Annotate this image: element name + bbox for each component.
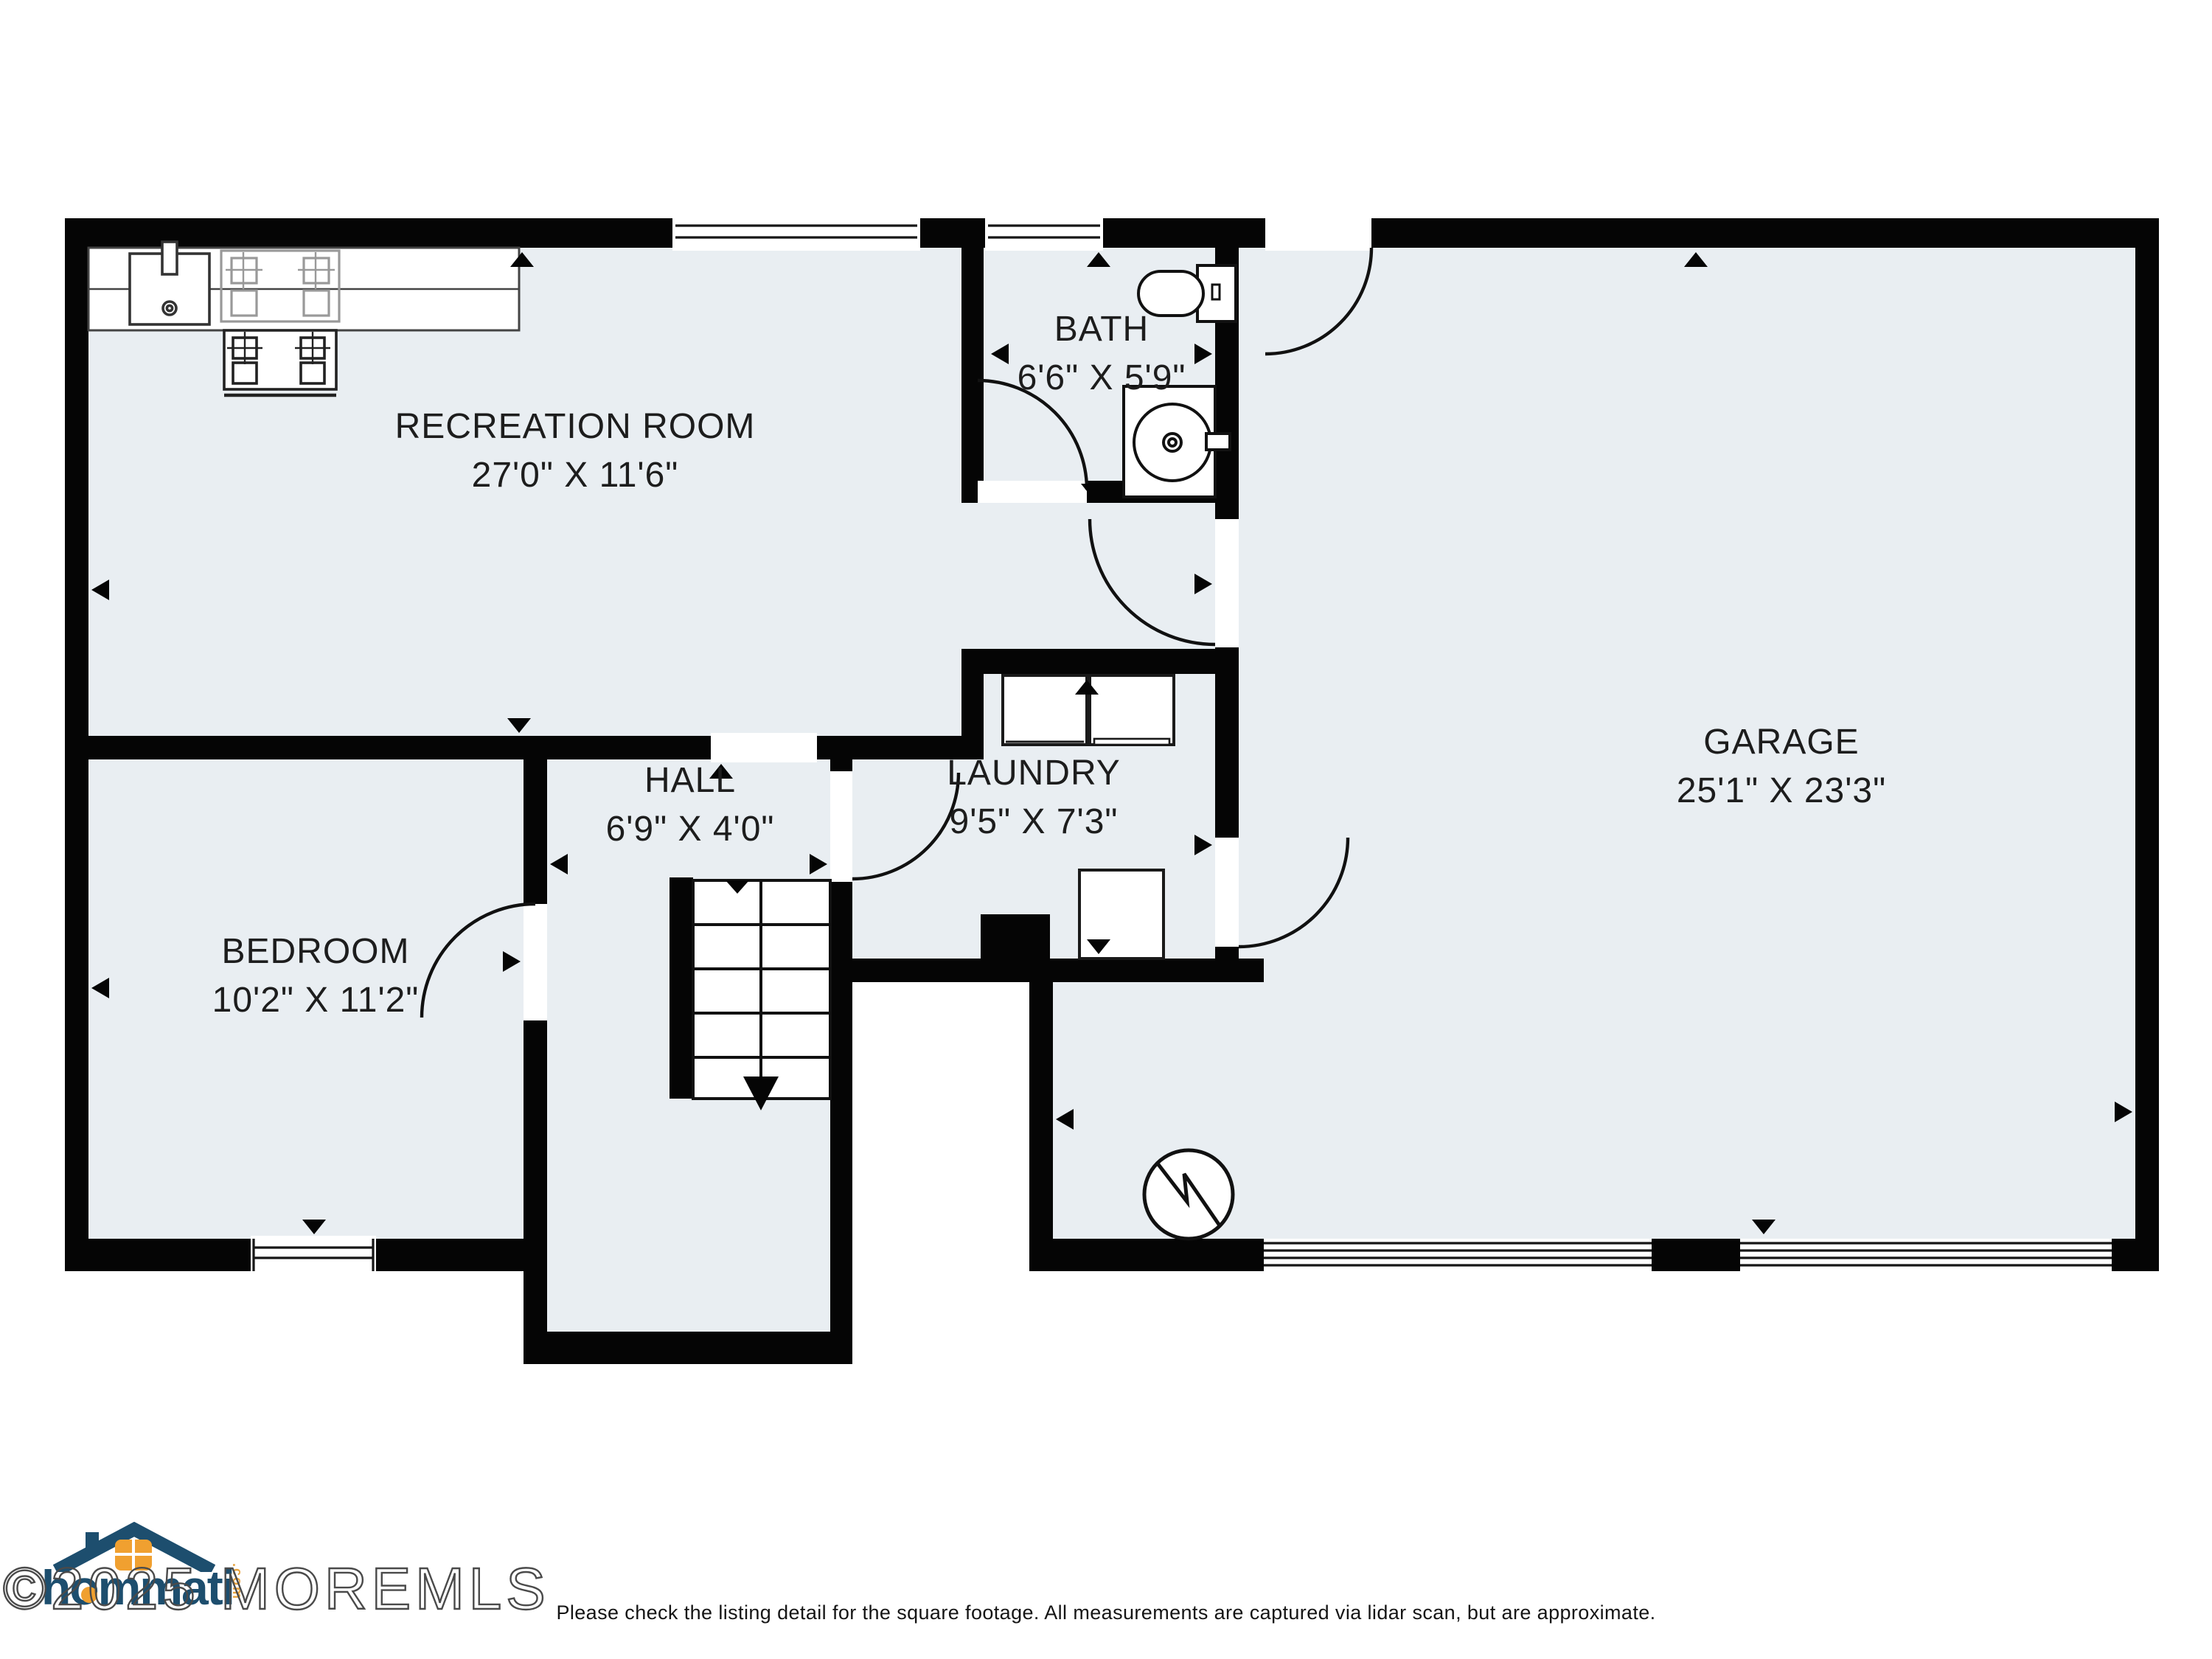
wall-bath-left — [961, 218, 984, 503]
dryer-icon — [1090, 675, 1174, 745]
disclaimer-text: Please check the listing detail for the … — [0, 1601, 2212, 1624]
kitchen-sink-icon — [130, 242, 209, 324]
wall-bedroom-hall — [524, 736, 547, 1364]
room-name: GARAGE — [1677, 718, 1886, 767]
wall-garage-west — [1029, 959, 1053, 1271]
bathroom-sink-icon — [1124, 386, 1230, 497]
room-label-garage: GARAGE 25'1" X 23'3" — [1677, 718, 1886, 815]
room-label-laundry: LAUNDRY 9'5" X 7'3" — [947, 749, 1121, 846]
corner-pillar — [981, 914, 1050, 959]
wall-laundry-bottom — [830, 959, 1264, 982]
room-name: HALL — [606, 757, 775, 805]
entry-door-slab — [1265, 215, 1371, 251]
room-name: RECREATION ROOM — [395, 403, 756, 451]
washer-icon — [1003, 675, 1087, 745]
wall-top — [65, 218, 2159, 248]
electrical-panel-icon — [1144, 1150, 1233, 1239]
stairs — [693, 880, 830, 1110]
wall-stair-bottom — [524, 1332, 852, 1364]
wall-laundry-top — [961, 649, 1239, 674]
room-label-bedroom: BEDROOM 10'2" X 11'2" — [212, 928, 420, 1025]
wall-right — [2135, 218, 2159, 1271]
room-dims: 6'9" X 4'0" — [606, 805, 775, 854]
rec-window — [672, 215, 920, 251]
bedroom-window — [251, 1236, 376, 1274]
bedroom-door-slab — [524, 904, 547, 1020]
room-name: BATH — [1018, 305, 1186, 354]
bath-window — [985, 215, 1103, 251]
room-label-recreation-room: RECREATION ROOM 27'0" X 11'6" — [395, 403, 756, 500]
room-label-hall: HALL 6'9" X 4'0" — [606, 757, 775, 854]
room-name: LAUNDRY — [947, 749, 1121, 798]
room-dims: 6'6" X 5'9" — [1018, 354, 1186, 403]
room-dims: 9'5" X 7'3" — [947, 798, 1121, 846]
room-label-bath: BATH 6'6" X 5'9" — [1018, 305, 1186, 403]
wall-rec-hall-right — [817, 736, 961, 759]
garage-rec-door-slab — [1215, 519, 1239, 647]
room-dims: 27'0" X 11'6" — [395, 451, 756, 500]
floorplan-page: RECREATION ROOM 27'0" X 11'6" BATH 6'6" … — [0, 0, 2212, 1659]
stove-lower-icon — [224, 330, 336, 395]
room-name: BEDROOM — [212, 928, 420, 976]
laundry-door-slab — [830, 771, 852, 882]
room-dims: 10'2" X 11'2" — [212, 976, 420, 1025]
laundry-garage-door-slab — [1215, 838, 1239, 947]
bath-door-slab — [978, 481, 1087, 503]
wall-stair-west — [669, 877, 693, 1099]
room-dims: 25'1" X 23'3" — [1677, 767, 1886, 815]
